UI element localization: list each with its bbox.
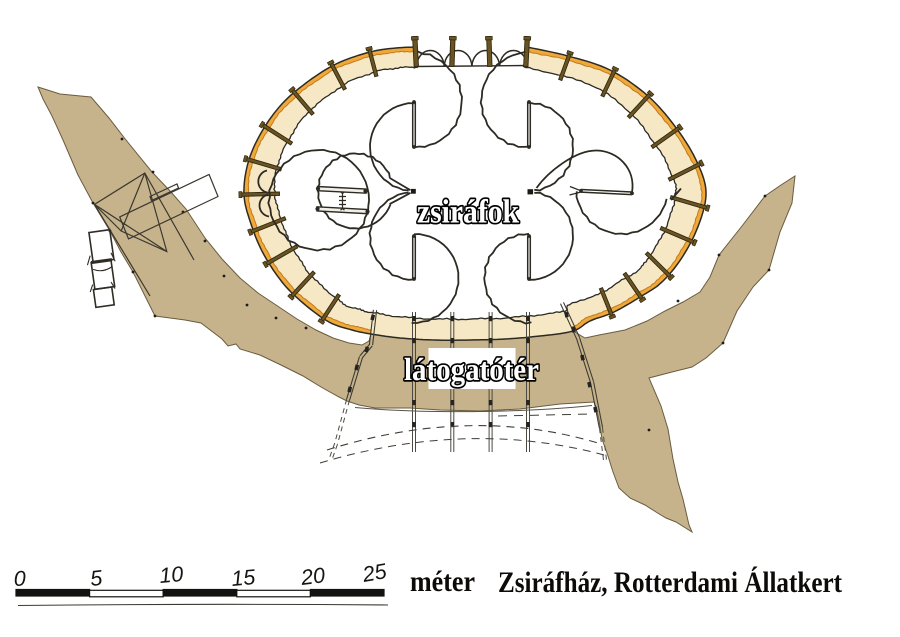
svg-text:zsiráfok: zsiráfok: [417, 194, 519, 231]
svg-text:20: 20: [299, 563, 327, 590]
svg-text:15: 15: [230, 565, 257, 591]
svg-text:Zsiráfház, Rotterdami Állatker: Zsiráfház, Rotterdami Állatkert: [498, 566, 842, 599]
svg-text:látogatótér: látogatótér: [404, 351, 539, 388]
svg-text:10: 10: [158, 562, 184, 588]
svg-text:méter: méter: [410, 565, 475, 598]
svg-text:0: 0: [13, 567, 26, 591]
